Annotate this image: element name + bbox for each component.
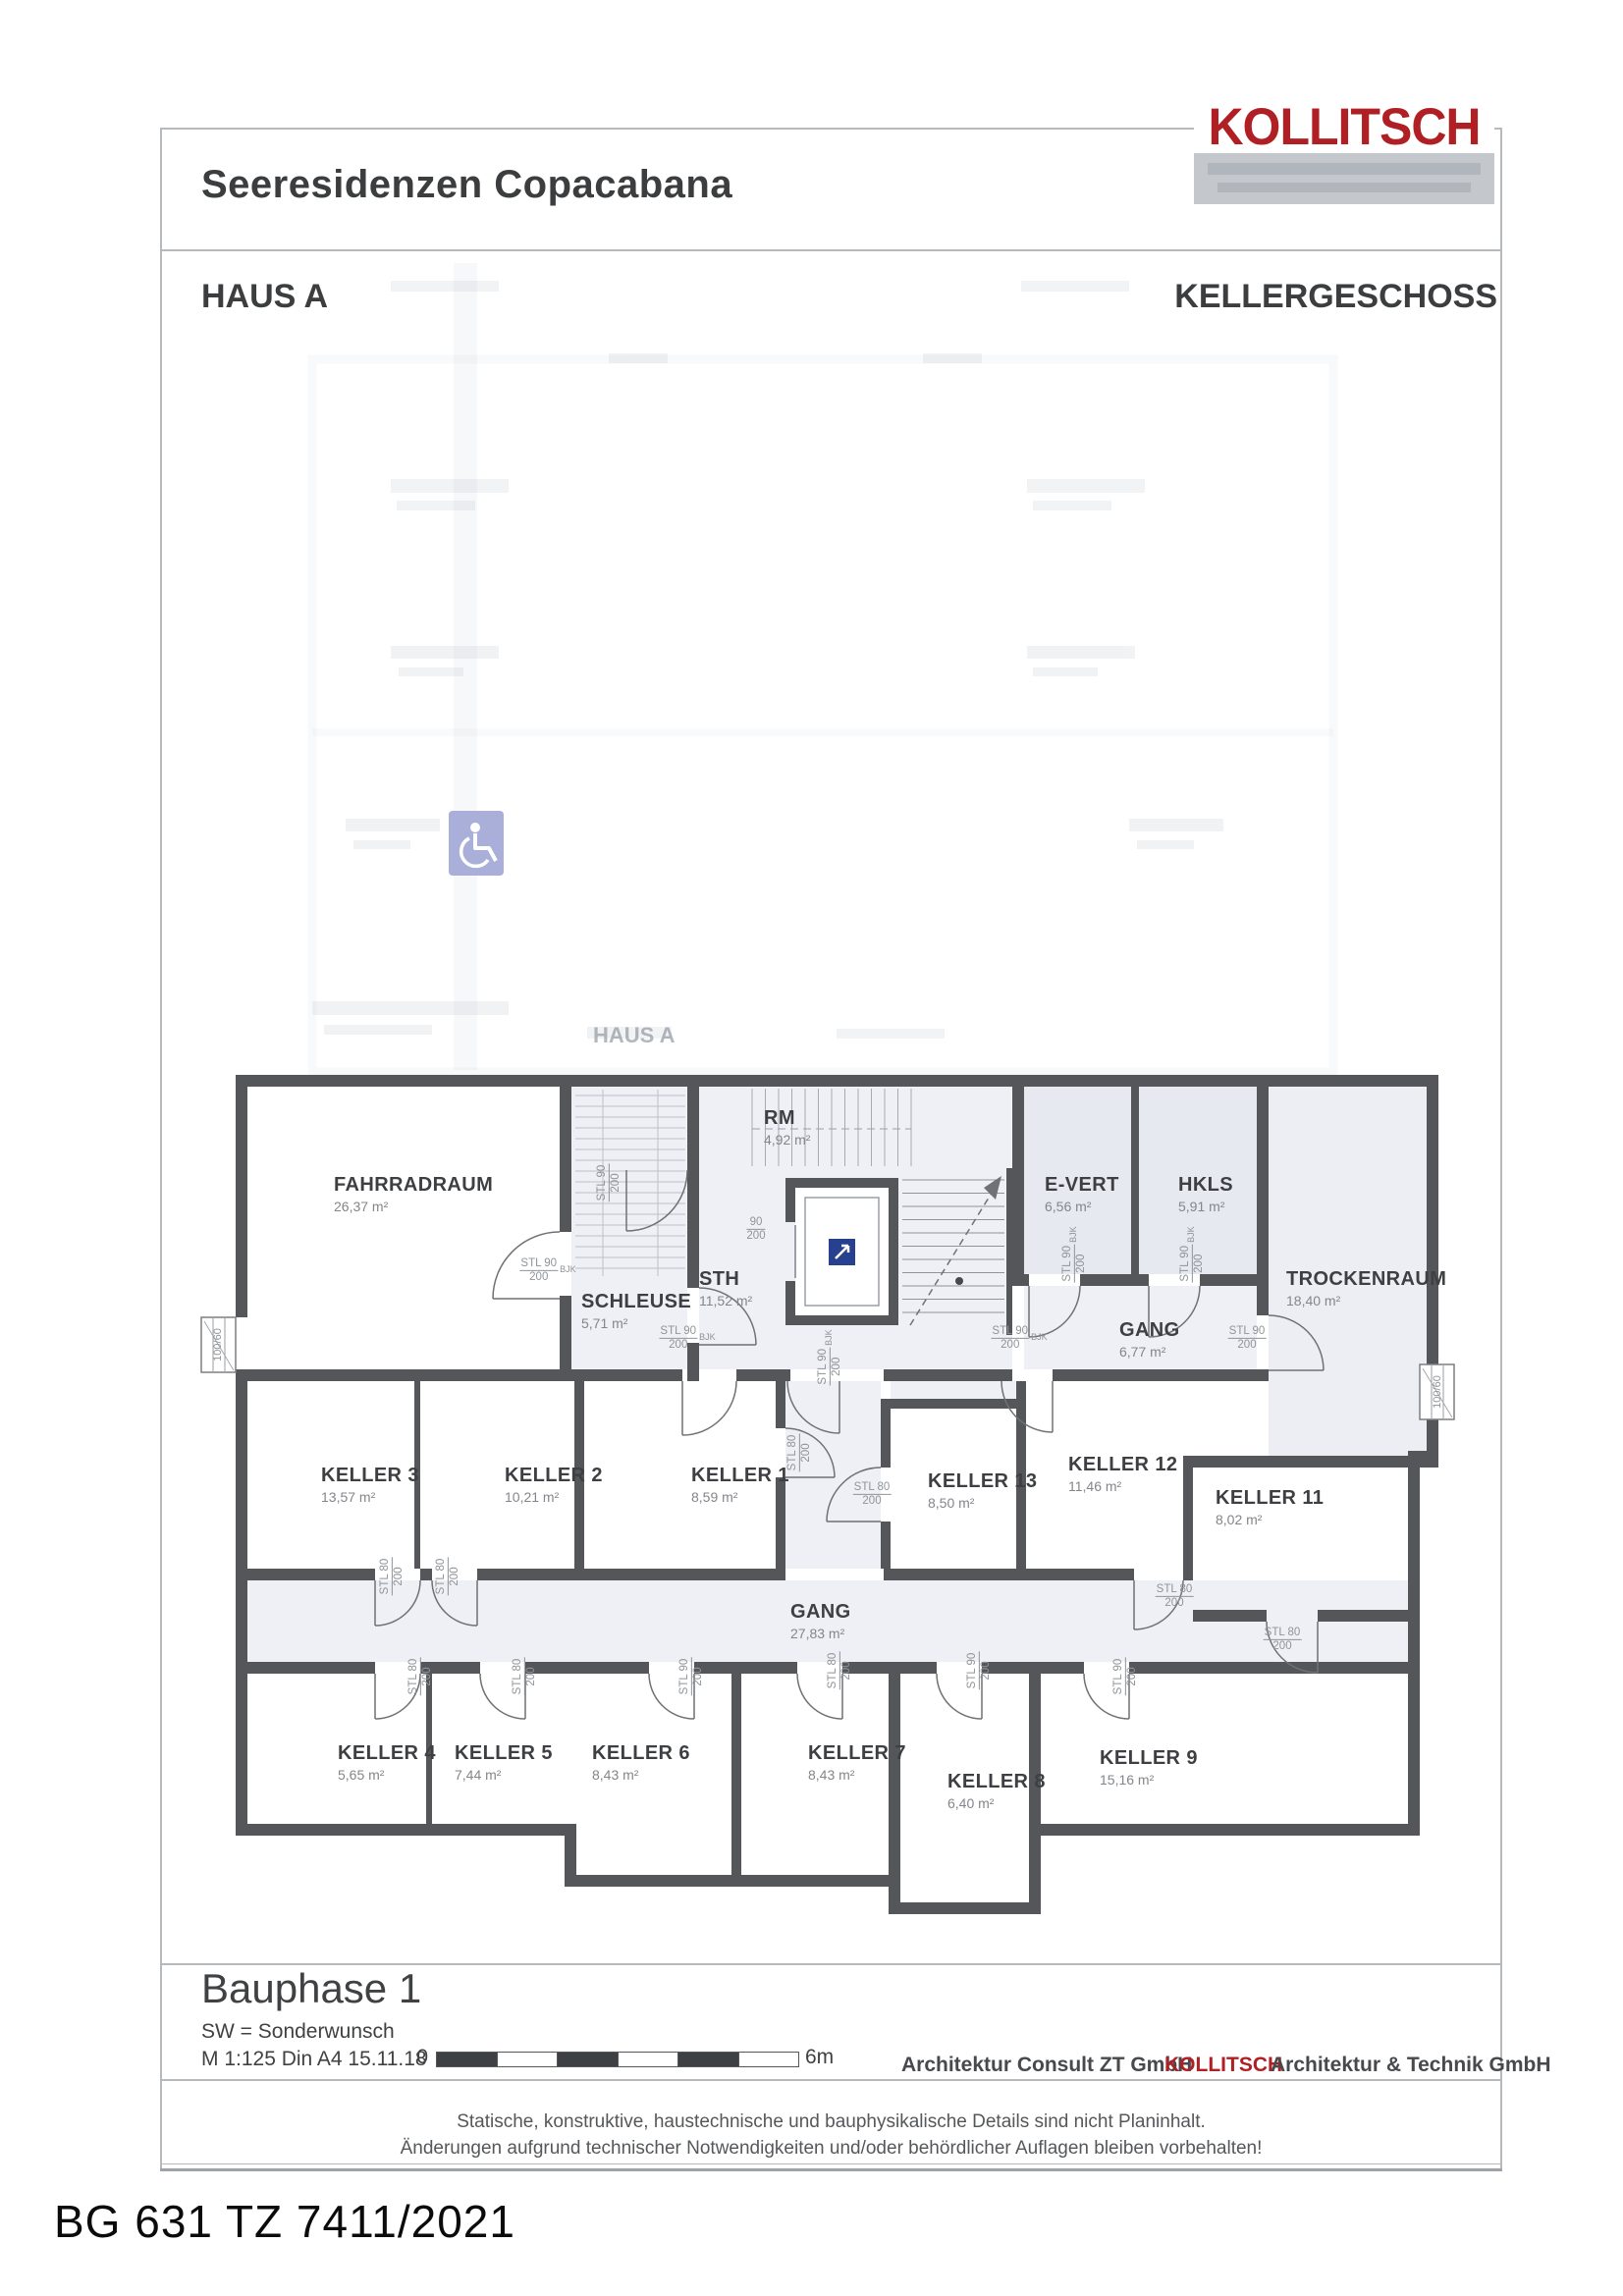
room-label-sth: STH11,52 m²	[699, 1268, 752, 1308]
door-size-height: 200	[800, 1434, 813, 1472]
legend-note: SW = Sonderwunsch	[201, 2020, 395, 2044]
door-label: STL 90200	[678, 1658, 704, 1696]
room-area: 5,65 m²	[338, 1767, 436, 1783]
document-number: BG 631 TZ 7411/2021	[54, 2195, 515, 2248]
door-size-width: STL 90	[659, 1325, 697, 1339]
scalebar-max: 6m	[805, 2046, 834, 2069]
disclaimer: Statische, konstruktive, haustechnische …	[160, 2109, 1502, 2162]
room-area: 11,52 m²	[699, 1293, 752, 1308]
door-type-suffix: BJK	[825, 1329, 835, 1346]
room-area: 5,91 m²	[1178, 1199, 1233, 1214]
room-label-keller-13: KELLER 138,50 m²	[928, 1470, 1037, 1511]
room-name: STH	[699, 1268, 752, 1291]
room-area: 13,57 m²	[321, 1489, 419, 1505]
door-size-width: STL 80	[827, 1652, 840, 1690]
door-size-width: STL 90	[1112, 1658, 1126, 1696]
scalebar	[436, 2052, 799, 2067]
door-size-height: 200	[449, 1558, 461, 1596]
door-size-height: 200	[1075, 1245, 1088, 1283]
door-size-height: 200	[519, 1271, 558, 1284]
room-name: KELLER 9	[1100, 1747, 1198, 1770]
plan-label-layer: FAHRRADRAUM26,37 m²SCHLEUSE5,71 m²RM4,92…	[0, 0, 1623, 2296]
door-size-width: 90	[746, 1216, 765, 1230]
room-area: 18,40 m²	[1286, 1293, 1446, 1308]
room-label-fahrradraum: FAHRRADRAUM26,37 m²	[334, 1174, 493, 1214]
door-size-height: 200	[610, 1164, 622, 1202]
door-size-height: 200	[1264, 1640, 1302, 1653]
door-size-height: 200	[421, 1658, 434, 1696]
room-label-gang: GANG6,77 m²	[1119, 1319, 1180, 1360]
room-label-trockenraum: TROCKENRAUM18,40 m²	[1286, 1268, 1446, 1308]
scalebar-segment	[619, 2053, 679, 2066]
door-type-suffix: BJK	[1031, 1333, 1048, 1343]
room-label-gang: GANG27,83 m²	[790, 1601, 851, 1641]
door-label: STL 90200	[966, 1652, 992, 1690]
room-name: GANG	[790, 1601, 851, 1624]
room-label-keller-12: KELLER 1211,46 m²	[1068, 1454, 1177, 1494]
door-size-height: 200	[746, 1230, 765, 1243]
room-name: FAHRRADRAUM	[334, 1174, 493, 1197]
door-label: STL 80200	[435, 1558, 460, 1596]
room-label-keller-2: KELLER 210,21 m²	[505, 1465, 603, 1505]
door-size-height: 200	[831, 1348, 843, 1386]
door-label: STL 90200BJK	[659, 1325, 715, 1351]
door-size-height: 200	[853, 1495, 892, 1508]
room-name: KELLER 8	[947, 1771, 1046, 1793]
room-name: KELLER 3	[321, 1465, 419, 1487]
scalebar-segment	[739, 2053, 799, 2066]
door-size-height: 200	[980, 1652, 993, 1690]
door-label: STL 80200	[1264, 1627, 1302, 1652]
door-label: STL 80200	[379, 1558, 405, 1596]
room-name: KELLER 12	[1068, 1454, 1177, 1476]
room-label-keller-6: KELLER 68,43 m²	[592, 1742, 690, 1783]
door-label: STL 80200	[512, 1658, 537, 1696]
architect-firm-right: Architektur & Technik GmbH	[1271, 2054, 1551, 2077]
scalebar-segment	[678, 2053, 739, 2066]
room-name: GANG	[1119, 1319, 1180, 1342]
door-label: STL 90200	[1112, 1658, 1138, 1696]
room-area: 8,02 m²	[1216, 1512, 1324, 1527]
door-label: STL 90200BJK	[1179, 1226, 1205, 1282]
architect-firm-left: Architektur Consult ZT GmbH	[901, 2054, 1192, 2077]
door-label: STL 80200	[407, 1658, 433, 1696]
door-size-width: STL 80	[786, 1434, 800, 1472]
door-label: STL 80200	[1156, 1583, 1194, 1609]
door-size-width: STL 80	[407, 1658, 421, 1696]
room-label-hkls: HKLS5,91 m²	[1178, 1174, 1233, 1214]
room-area: 6,77 m²	[1119, 1344, 1180, 1360]
door-size-height: 200	[1126, 1658, 1139, 1696]
room-area: 4,92 m²	[764, 1132, 810, 1148]
door-label: STL 90200BJK	[519, 1257, 575, 1283]
door-size-width: STL 80	[435, 1558, 449, 1596]
door-size-width: STL 90	[1179, 1245, 1193, 1283]
disclaimer-line-1: Statische, konstruktive, haustechnische …	[160, 2109, 1502, 2135]
door-label: STL 90200	[596, 1164, 622, 1202]
door-label: STL 80200	[827, 1652, 852, 1690]
room-area: 26,37 m²	[334, 1199, 493, 1214]
door-size-height: 200	[840, 1652, 853, 1690]
door-size-width: STL 80	[379, 1558, 393, 1596]
door-size-width: STL 90	[519, 1257, 558, 1271]
door-size-width: STL 80	[1264, 1627, 1302, 1640]
room-label-keller-9: KELLER 915,16 m²	[1100, 1747, 1198, 1788]
door-size-width: STL 80	[512, 1658, 525, 1696]
door-size-width: STL 80	[1156, 1583, 1194, 1597]
door-label: STL 80200	[853, 1481, 892, 1507]
disclaimer-line-2: Änderungen aufgrund technischer Notwendi…	[160, 2135, 1502, 2162]
room-label-keller-4: KELLER 45,65 m²	[338, 1742, 436, 1783]
room-area: 8,43 m²	[592, 1767, 690, 1783]
door-label: STL 80200	[786, 1434, 812, 1472]
room-area: 15,16 m²	[1100, 1772, 1198, 1788]
room-area: 8,59 m²	[691, 1489, 789, 1505]
window-size-label: 100/60	[1432, 1375, 1443, 1409]
door-label: STL 90200BJK	[817, 1329, 842, 1385]
phase-title: Bauphase 1	[201, 1965, 421, 2012]
door-size-width: STL 90	[678, 1658, 692, 1696]
room-name: KELLER 7	[808, 1742, 906, 1765]
room-name: KELLER 5	[455, 1742, 553, 1765]
scalebar-segment	[437, 2053, 498, 2066]
window-size-label: 100/60	[212, 1328, 224, 1362]
door-label: STL 90200BJK	[991, 1325, 1047, 1351]
scalebar-zero: 0	[393, 2046, 428, 2069]
door-size-height: 200	[1228, 1339, 1267, 1352]
room-name: RM	[764, 1107, 810, 1130]
door-size-height: 200	[659, 1339, 697, 1352]
room-name: HKLS	[1178, 1174, 1233, 1197]
door-size-height: 200	[991, 1339, 1029, 1352]
room-area: 6,56 m²	[1045, 1199, 1119, 1214]
door-size-width: STL 90	[817, 1348, 831, 1386]
door-size-width: STL 90	[1061, 1245, 1075, 1283]
door-size-height: 200	[525, 1658, 538, 1696]
door-size-width: STL 90	[991, 1325, 1029, 1339]
room-label-keller-7: KELLER 78,43 m²	[808, 1742, 906, 1783]
door-type-suffix: BJK	[1187, 1226, 1197, 1243]
room-name: KELLER 1	[691, 1465, 789, 1487]
room-label-keller-5: KELLER 57,44 m²	[455, 1742, 553, 1783]
door-type-suffix: BJK	[1069, 1226, 1079, 1243]
room-name: TROCKENRAUM	[1286, 1268, 1446, 1291]
room-area: 8,50 m²	[928, 1495, 1037, 1511]
door-label: STL 90200BJK	[1061, 1226, 1087, 1282]
plan-document-page: Seeresidenzen Copacabana KOLLITSCH HAUS …	[0, 0, 1623, 2296]
room-label-keller-1: KELLER 18,59 m²	[691, 1465, 789, 1505]
room-name: KELLER 13	[928, 1470, 1037, 1493]
room-label-keller-3: KELLER 313,57 m²	[321, 1465, 419, 1505]
door-size-height: 200	[692, 1658, 705, 1696]
door-label: STL 90200	[1228, 1325, 1267, 1351]
door-size-width: STL 80	[853, 1481, 892, 1495]
room-label-keller-11: KELLER 118,02 m²	[1216, 1487, 1324, 1527]
room-label-e-vert: E-VERT6,56 m²	[1045, 1174, 1119, 1214]
room-label-rm: RM4,92 m²	[764, 1107, 810, 1148]
room-name: SCHLEUSE	[581, 1291, 691, 1313]
room-area: 27,83 m²	[790, 1626, 851, 1641]
door-size-height: 200	[393, 1558, 406, 1596]
room-area: 11,46 m²	[1068, 1478, 1177, 1494]
architect-firm-brand: KOLLITSCH	[1164, 2054, 1282, 2077]
room-name: KELLER 11	[1216, 1487, 1324, 1510]
door-size-width: STL 90	[1228, 1325, 1267, 1339]
room-name: KELLER 2	[505, 1465, 603, 1487]
room-area: 6,40 m²	[947, 1795, 1046, 1811]
scalebar-segment	[558, 2053, 619, 2066]
room-area: 8,43 m²	[808, 1767, 906, 1783]
door-type-suffix: BJK	[560, 1265, 576, 1275]
door-size-height: 200	[1193, 1245, 1206, 1283]
door-size-width: STL 90	[596, 1164, 610, 1202]
room-area: 7,44 m²	[455, 1767, 553, 1783]
room-name: KELLER 4	[338, 1742, 436, 1765]
door-label: 90200	[746, 1216, 765, 1242]
room-name: E-VERT	[1045, 1174, 1119, 1197]
room-label-keller-8: KELLER 86,40 m²	[947, 1771, 1046, 1811]
door-type-suffix: BJK	[699, 1333, 716, 1343]
door-size-height: 200	[1156, 1597, 1194, 1610]
door-size-width: STL 90	[966, 1652, 980, 1690]
room-name: KELLER 6	[592, 1742, 690, 1765]
scalebar-segment	[498, 2053, 559, 2066]
room-area: 10,21 m²	[505, 1489, 603, 1505]
